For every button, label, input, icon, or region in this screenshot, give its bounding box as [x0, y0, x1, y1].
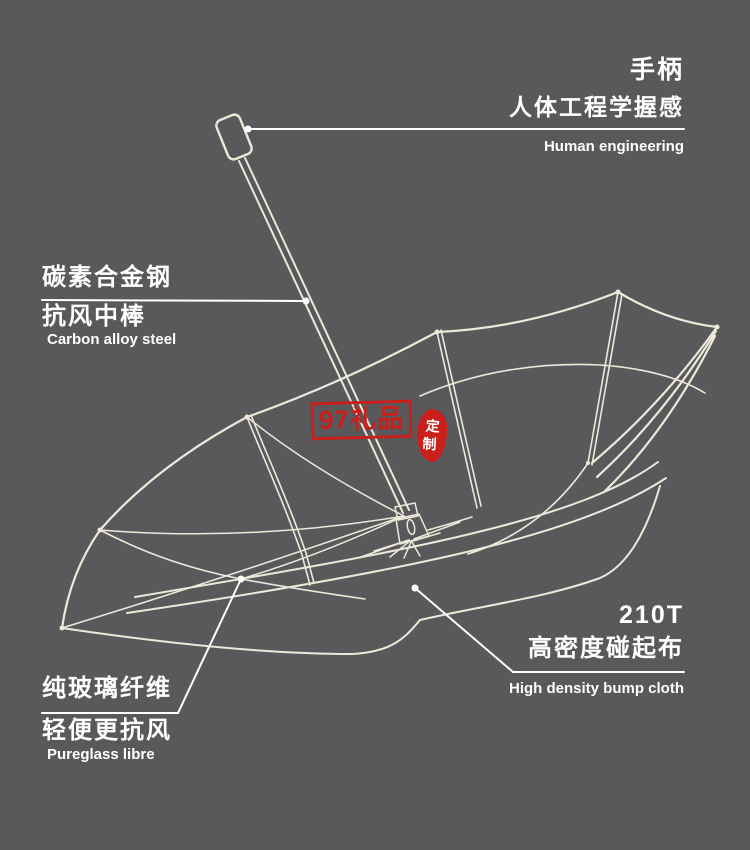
umbrella-handle	[215, 113, 254, 161]
umbrella-hub	[358, 503, 472, 558]
seal-char-top: 定	[425, 418, 440, 436]
canopy-callout-subtitle: 高密度碰起布	[528, 637, 684, 661]
handle-callout-subtitle: 人体工程学握感	[509, 96, 684, 119]
ribs-callout-title: 纯玻璃纤维	[42, 677, 172, 701]
umbrella-bottom-rim	[62, 486, 660, 654]
shaft-callout-title: 碳素合金钢	[42, 266, 172, 290]
leader-line-handle	[245, 126, 685, 133]
seal-char-bottom: 制	[422, 435, 437, 453]
shaft-callout-subtitle: 抗风中棒	[42, 305, 146, 329]
leader-dot-icon	[412, 585, 419, 592]
ribs-callout-subtitle: 轻便更抗风	[42, 719, 172, 743]
brand-watermark: 97礼品	[311, 400, 413, 440]
handle-callout-caption: Human engineering	[544, 139, 684, 154]
leader-dot-icon	[303, 298, 310, 305]
umbrella-infographic: 手柄 人体工程学握感 Human engineering 碳素合金钢 抗风中棒 …	[0, 0, 750, 850]
shaft-callout-caption: Carbon alloy steel	[47, 332, 176, 347]
leader-dot-icon	[238, 576, 245, 583]
leader-dot-icon	[245, 126, 252, 133]
handle-callout-title: 手柄	[630, 58, 684, 83]
canopy-callout-caption: High density bump cloth	[509, 681, 684, 696]
canopy-callout-title: 210T	[619, 603, 684, 628]
ribs-callout-caption: Pureglass libre	[47, 747, 155, 762]
